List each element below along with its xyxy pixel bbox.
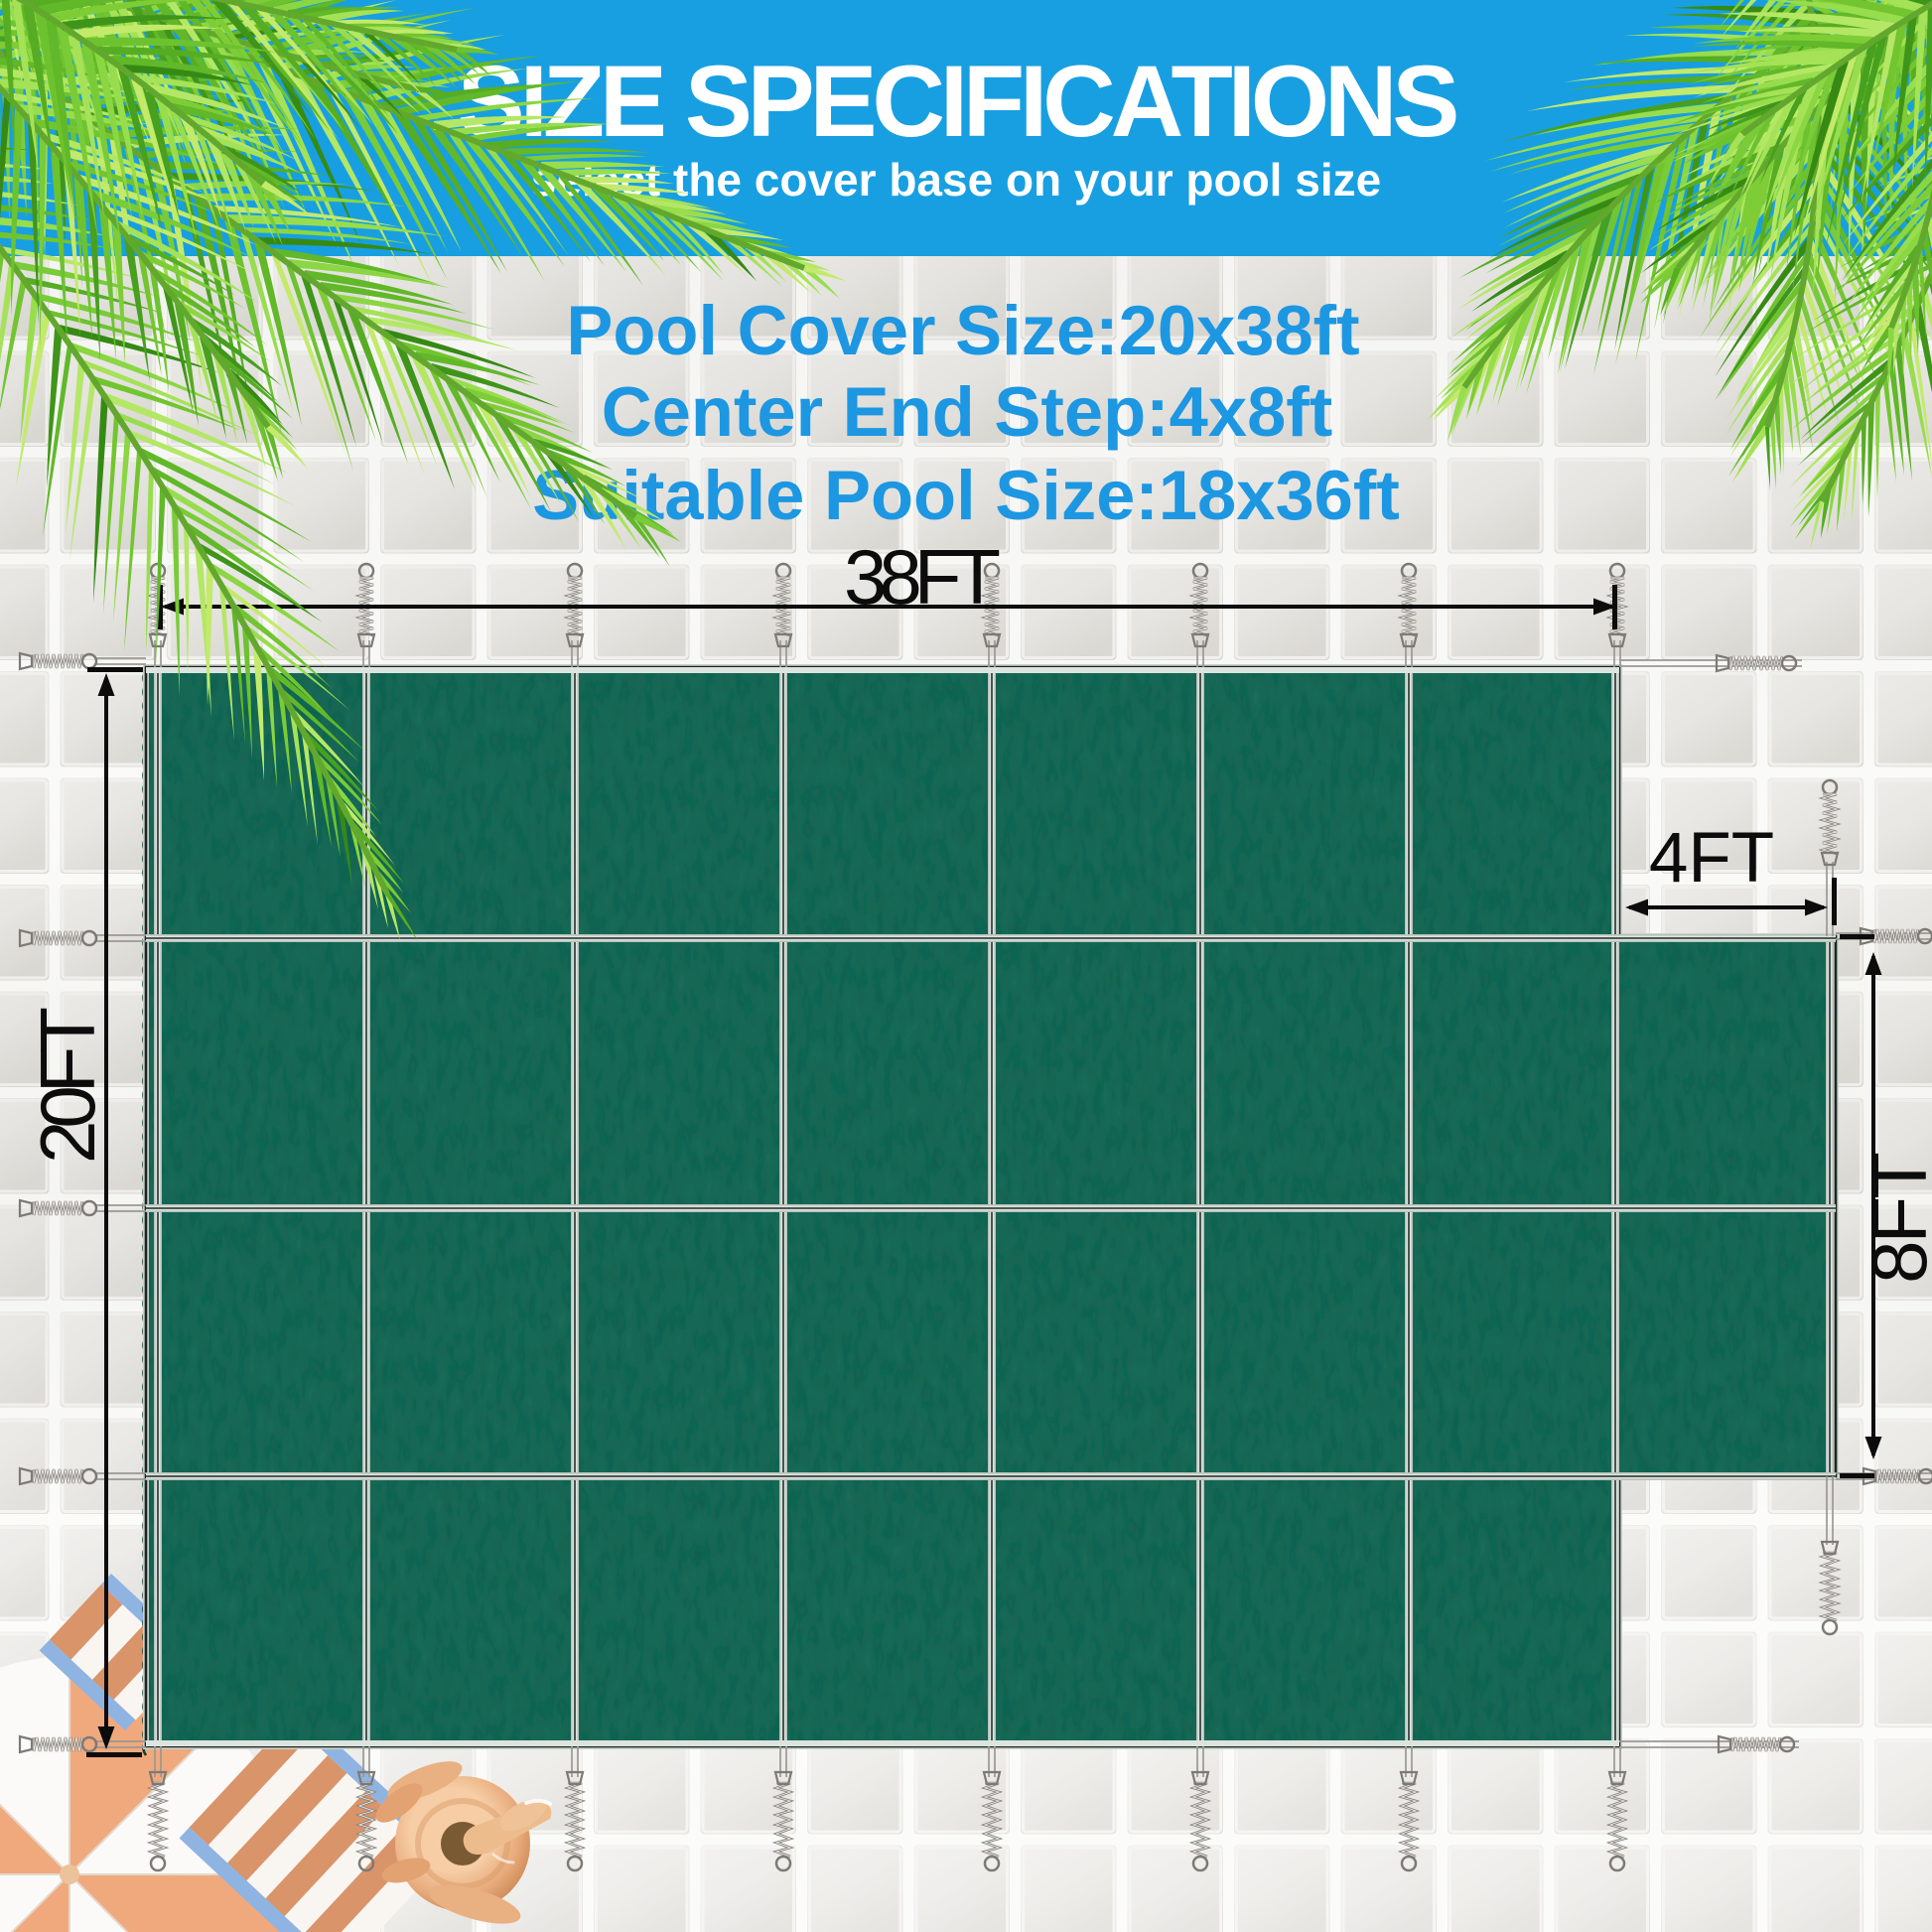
svg-text:Pool Cover Size:20x38ft: Pool Cover Size:20x38ft [566, 291, 1359, 369]
svg-text:38FT: 38FT [844, 533, 999, 621]
svg-text:Center End Step:4x8ft: Center End Step:4x8ft [602, 372, 1332, 451]
svg-text:20FT: 20FT [24, 1009, 111, 1164]
svg-text:8FT: 8FT [1856, 1154, 1932, 1284]
svg-text:4FT: 4FT [1649, 819, 1774, 897]
svg-text:Suitable Pool Size:18x36ft: Suitable Pool Size:18x36ft [532, 456, 1400, 534]
svg-text:SIZE SPECIFICATIONS: SIZE SPECIFICATIONS [458, 45, 1457, 158]
